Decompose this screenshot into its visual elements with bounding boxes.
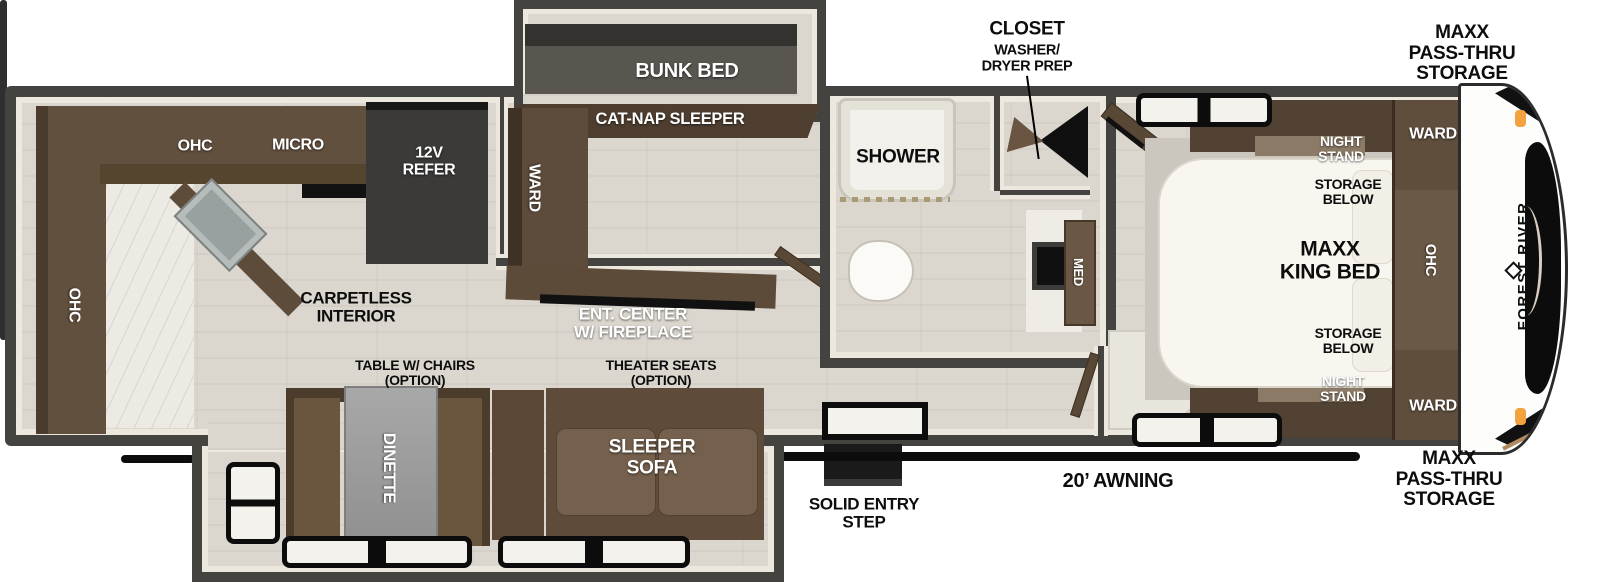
label-ent-center: ENT. CENTER W/ FIREPLACE [574,306,692,343]
label-refer: 12V REFER [403,145,456,180]
cooktop [302,184,366,198]
sofa-armrest-block [492,390,544,540]
label-carpetless: CARPETLESS INTERIOR [300,290,411,327]
dinette-bench-right [436,398,490,546]
entry-step-box [824,444,902,486]
shower-glass-door [840,197,950,202]
closet-bottom-wall [1000,186,1090,199]
cap-marker-light-top [1515,110,1526,127]
entry-door-mat [822,402,928,440]
label-rear-ohc: OHC [65,288,82,323]
label-bunk-ward: WARD [525,164,542,212]
label-sleeper-sofa: SLEEPER SOFA [609,437,696,478]
label-ward-front-top: WARD [1409,125,1457,142]
awning-line [768,452,1360,461]
kitchen-upper-cabinets [100,106,368,184]
slide-window-left [282,536,472,568]
label-entry-step: SOLID ENTRY STEP [809,496,919,533]
label-night-stand-bottom: NIGHT STAND [1320,374,1366,404]
label-kitchen-ohc: OHC [178,137,213,154]
refrigerator [366,102,488,264]
bunk-wardrobe [508,108,588,272]
label-dinette: DINETTE [380,433,398,504]
dinette-bench-left [286,398,340,546]
bunk-pillow-strip [525,24,797,46]
label-storage-below-top: STORAGE BELOW [1315,177,1382,207]
rear-ohc-cabinet [36,106,106,434]
bedroom-window-bottom [1132,413,1282,447]
label-ward-front-bottom: WARD [1409,397,1457,414]
label-closet-sub: WASHER/ DRYER PREP [982,43,1073,74]
label-storage-front-bottom: MAXX PASS-THRU STORAGE [1396,449,1503,511]
label-med-cabinet: MED [1071,258,1085,286]
label-cat-nap-sleeper: CAT-NAP SLEEPER [596,111,745,129]
label-awning: 20’ AWNING [1063,471,1174,493]
floorplan-canvas: MAXX PASS-THRU STORAGE CLOSET WASHER/ DR… [0,0,1600,582]
label-micro: MICRO [272,136,324,153]
slide-window-side [226,462,280,544]
slide-window-right [498,536,690,568]
label-bunk-bed: BUNK BED [635,61,738,83]
rear-grab-line [121,455,195,463]
label-bedroom-ohc: OHC [1422,244,1438,276]
label-shower: SHOWER [856,148,940,169]
label-table-option: TABLE W/ CHAIRS (OPTION) [355,358,475,388]
toilet [848,240,914,302]
label-closet-title: CLOSET [989,20,1064,41]
bedroom-window-top [1136,93,1272,127]
label-night-stand-top: NIGHT STAND [1318,134,1364,164]
closet-divider-wall [990,96,1004,191]
label-storage-front-top: MAXX PASS-THRU STORAGE [1409,23,1516,85]
bunkroom-left-wall [496,97,508,257]
cap-marker-light-bottom [1515,408,1526,425]
label-storage-below-bottom: STORAGE BELOW [1315,326,1382,356]
label-king-bed: MAXX KING BED [1280,238,1380,283]
label-theater-option: THEATER SEATS (OPTION) [606,358,717,388]
